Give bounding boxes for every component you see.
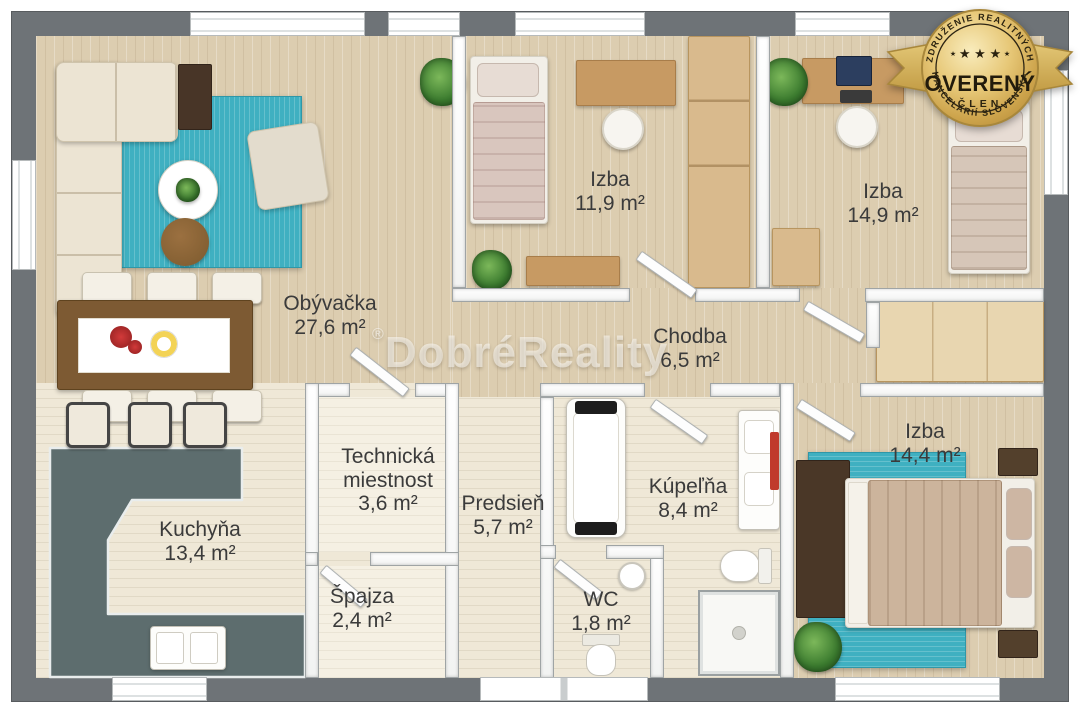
badge-subtitle: ČLEN [958,97,1003,110]
toilet-tank [758,548,772,584]
room-name: Špajza [330,585,394,609]
wc-toilet-bowl [586,644,616,676]
wall [540,383,645,397]
wall [756,36,770,288]
watermark: ®DobréReality [372,326,668,378]
room-label-kupelna: Kúpeľňa 8,4 m² [649,475,728,522]
room-name: Izba [889,420,960,444]
sink-basin [156,632,184,664]
room-name: Kúpeľňa [649,475,728,499]
sofa-top-section [56,62,178,142]
floor-plan: Obývačka 27,6 m² Izba 11,9 m² Izba 14,9 … [0,0,1080,713]
room-label-obyvacka: Obývačka 27,6 m² [283,292,376,339]
bed-pillow [477,63,539,97]
badge-star-icon: ★ [950,50,956,58]
room-label-izba-1: Izba 11,9 m² [575,168,645,215]
bathtub-headrest [575,522,617,535]
computer-monitor-icon [836,56,872,86]
ottoman [161,218,209,266]
bathtub-basin [573,412,619,524]
room-name: Obývačka [283,292,376,316]
window-bottom-kitchen [112,677,207,701]
badge-star-icon: ★ [1004,50,1010,58]
room-name: Technická miestnost [325,445,451,492]
wall [606,545,664,559]
bed-blanket [951,146,1027,270]
sink-basin [190,632,218,664]
armchair [246,121,330,211]
bar-stool [128,402,172,448]
flowers-icon [128,340,142,354]
wall [865,288,1044,302]
room-area: 14,9 m² [847,204,918,228]
room-label-predsien: Predsieň 5,7 m² [462,492,545,539]
window-top-living [190,12,365,36]
bedroom-3-plant-icon [794,622,842,672]
room-name: Izba [575,168,645,192]
shower-drain [732,626,746,640]
bed-mattress [848,482,868,624]
wall [305,552,318,566]
bed-pillow [1006,546,1032,598]
wall [452,36,466,288]
room-area: 13,4 m² [159,542,241,566]
room-area: 2,4 m² [330,609,394,633]
room-area: 1,8 m² [571,612,631,636]
bar-stool [66,402,110,448]
nightstand [998,630,1038,658]
room-name: WC [571,588,631,612]
bathtub-headrest [575,401,617,414]
wall [540,545,556,559]
room-name: Kuchyňa [159,518,241,542]
desk-chair [602,108,644,150]
entrance-door [480,677,648,701]
coffee-table-plant-icon [176,178,200,202]
desk-chair [836,106,878,148]
hall-closet [876,298,1044,382]
window-top-living-2 [388,12,460,36]
desk-1 [576,60,676,106]
window-bottom-bedroom-3 [835,677,1000,701]
room-label-spajza: Špajza 2,4 m² [330,585,394,632]
wall [866,302,880,348]
cabinet-small [772,228,820,286]
wall [710,383,780,397]
wall [452,288,630,302]
room-area: 3,6 m² [325,492,451,516]
room-area: 14,4 m² [889,444,960,468]
bed-blanket [868,480,1002,626]
watermark-symbol: ® [372,326,385,343]
bed-blanket [473,102,545,220]
wall [860,383,1044,397]
watermark-text: DobréReality [385,328,668,377]
wall [780,383,794,678]
bar-stool [183,402,227,448]
room-area: 27,6 m² [283,316,376,340]
wall [305,383,319,678]
toilet-bowl [720,550,760,582]
room-label-wc: WC 1,8 m² [571,588,631,635]
wc-sink [618,562,646,590]
badge-title: OVERENÝ [924,71,1035,96]
wardrobe-3 [796,460,850,618]
window-top-bedroom-2 [795,12,890,36]
room-name: Izba [847,180,918,204]
badge-stars-icon: ★ ★ ★ [959,46,1001,61]
room-area: 5,7 m² [462,516,545,540]
bedroom-1-plant-icon [472,250,512,290]
nightstand [998,448,1038,476]
window-top-bedroom-1 [515,12,645,36]
wall [370,552,459,566]
window-left-living [12,160,36,270]
room-label-technicka: Technická miestnost 3,6 m² [325,445,451,516]
towel-radiator [770,432,779,490]
wall [445,383,459,678]
wall [695,288,800,302]
bed-pillow [1006,488,1032,540]
room-label-izba-2: Izba 14,9 m² [847,180,918,227]
low-bench [526,256,620,286]
plate-icon [150,330,178,358]
console-table [178,64,212,130]
room-area: 8,4 m² [649,499,728,523]
room-label-izba-3: Izba 14,4 m² [889,420,960,467]
wall [650,545,664,678]
room-name: Predsieň [462,492,545,516]
room-label-kuchyna: Kuchyňa 13,4 m² [159,518,241,565]
verified-badge: ZDRUŽENIE REALITNÝCH KANCELÁRIÍ SLOVENSK… [880,2,1080,152]
room-area: 11,9 m² [575,192,645,216]
wardrobe-1 [688,36,750,288]
laptop-icon [840,90,872,103]
